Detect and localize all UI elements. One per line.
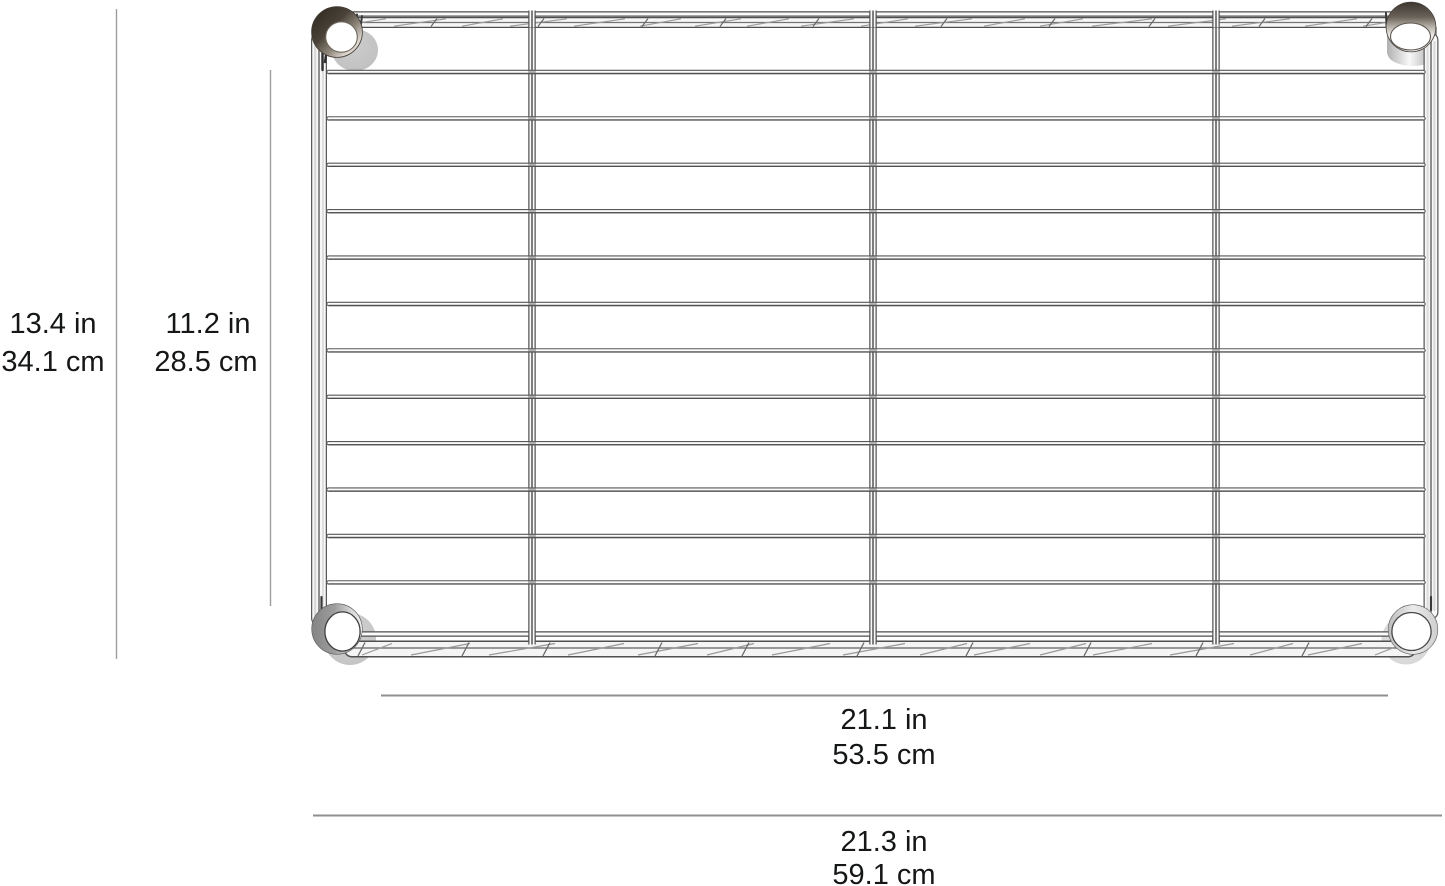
svg-text:59.1 cm: 59.1 cm bbox=[832, 859, 935, 886]
svg-text:13.4 in: 13.4 in bbox=[9, 308, 96, 340]
svg-text:53.5 cm: 53.5 cm bbox=[832, 739, 935, 771]
svg-text:21.3 in: 21.3 in bbox=[840, 826, 927, 858]
svg-text:34.1 cm: 34.1 cm bbox=[1, 346, 104, 378]
svg-text:28.5 cm: 28.5 cm bbox=[154, 346, 257, 378]
svg-text:21.1 in: 21.1 in bbox=[840, 704, 927, 736]
svg-text:11.2 in: 11.2 in bbox=[166, 308, 251, 340]
